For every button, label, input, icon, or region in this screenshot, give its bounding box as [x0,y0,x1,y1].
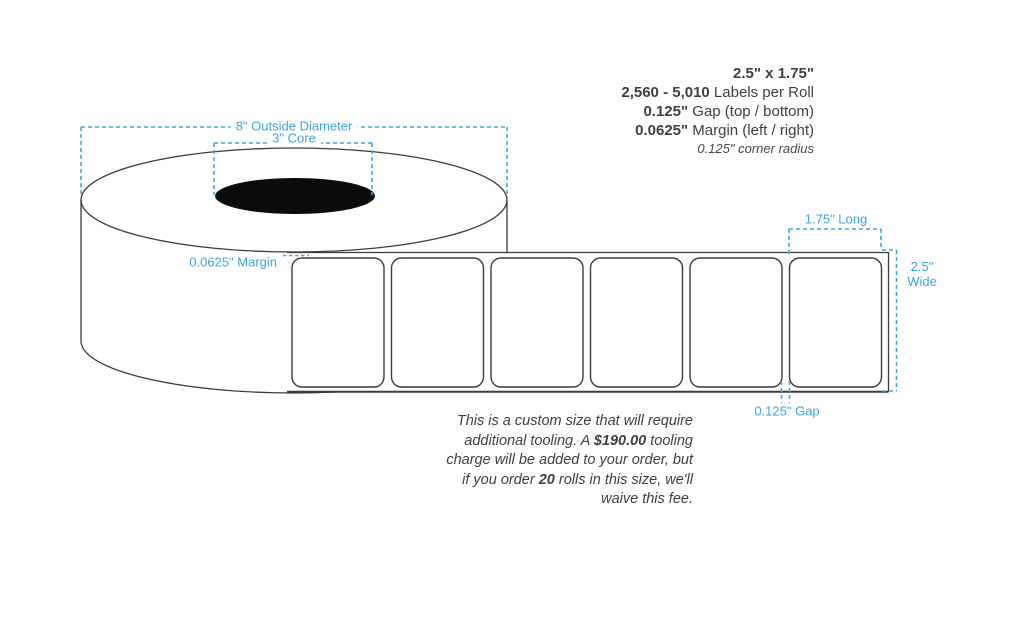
blank-label [392,258,484,387]
spec-margin-suffix: Margin (left / right) [688,122,814,139]
blank-label [292,258,384,387]
label-width-label: 2.5" Wide [907,259,937,289]
spec-margin-value: 0.0625" [635,122,688,139]
custom-label-roll-diagram-page: 8" Outside Diameter 3" Core 0.0625" Marg… [0,0,1024,636]
spec-gap-line: 0.125" Gap (top / bottom) [621,102,814,121]
spec-corner-radius-note: 0.125" corner radius [621,140,814,158]
label-width-word: Wide [907,274,937,289]
spec-size: 2.5" x 1.75" [733,65,814,82]
blank-label [790,258,882,387]
gap-label: 0.125" Gap [754,404,819,419]
note-tooling-charge: $190.00 [594,433,646,449]
margin-label: 0.0625" Margin [189,255,277,270]
spec-quantity-line: 2,560 - 5,010 Labels per Roll [621,83,814,102]
label-width-value: 2.5" [907,259,937,274]
roll-core-hole [215,178,375,214]
spec-size-line: 2.5" x 1.75" [621,64,814,83]
spec-quantity-range: 2,560 - 5,010 [621,84,709,101]
spec-block: 2.5" x 1.75" 2,560 - 5,010 Labels per Ro… [621,64,814,158]
note-rolls-quantity: 20 [539,472,555,488]
spec-quantity-suffix: Labels per Roll [710,84,814,101]
roll-diagram [0,0,1024,636]
spec-gap-value: 0.125" [643,103,688,120]
core-label: 3" Core [267,131,321,146]
blank-label [491,258,583,387]
custom-tooling-note: This is a custom size that will require … [437,412,693,510]
label-length-label: 1.75" Long [805,212,867,227]
blank-label [591,258,683,387]
note-text-3: rolls in this size, we'll waive this fee… [555,472,693,508]
spec-margin-line: 0.0625" Margin (left / right) [621,121,814,140]
blank-label [690,258,782,387]
spec-gap-suffix: Gap (top / bottom) [688,103,814,120]
